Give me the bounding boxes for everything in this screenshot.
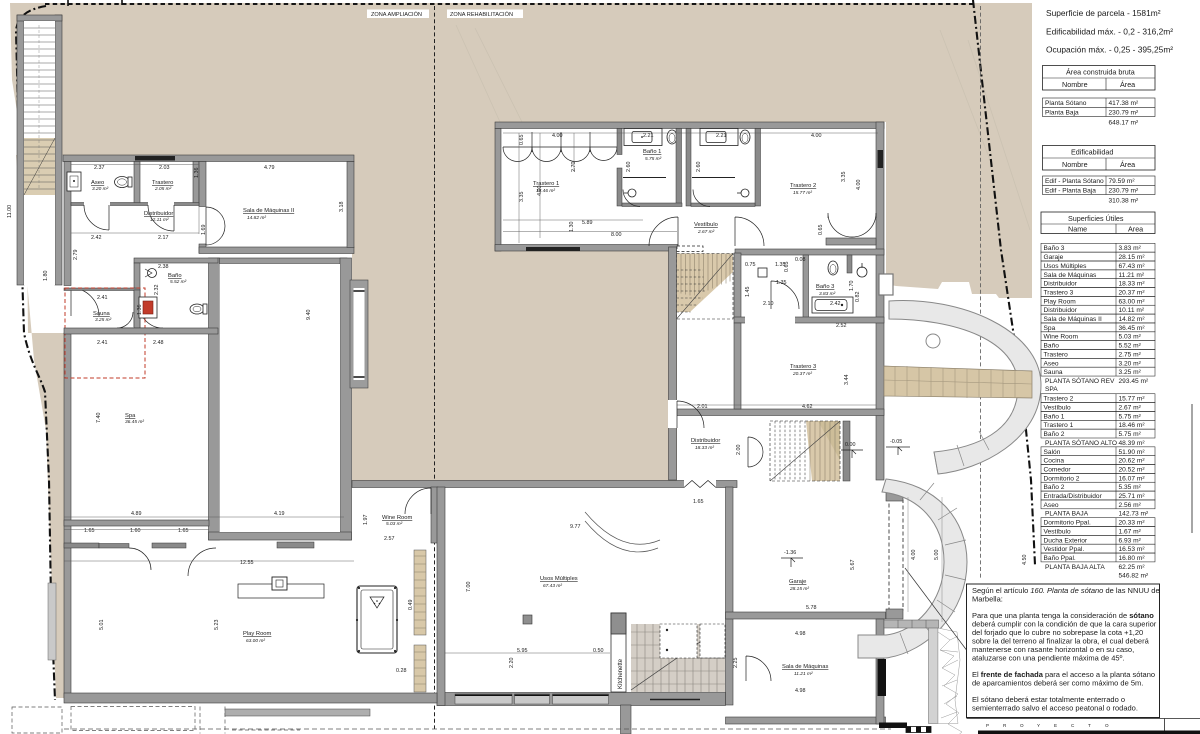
svg-text:142.73 m²: 142.73 m² (1119, 511, 1149, 518)
svg-text:2.32: 2.32 (154, 285, 160, 296)
svg-text:Dormitorio 2: Dormitorio 2 (1044, 475, 1080, 482)
svg-text:20.37 m²: 20.37 m² (792, 371, 812, 377)
svg-text:O: O (1105, 723, 1109, 728)
svg-text:1.65: 1.65 (178, 528, 189, 534)
svg-text:Baño 2: Baño 2 (1044, 484, 1065, 491)
svg-text:20.62 m²: 20.62 m² (1119, 458, 1146, 465)
svg-text:1.65: 1.65 (693, 499, 704, 505)
svg-text:Salón: Salón (1044, 449, 1061, 456)
svg-text:P: P (986, 723, 989, 728)
svg-text:417.38 m²: 417.38 m² (1109, 100, 1139, 107)
svg-text:1.97: 1.97 (363, 515, 369, 526)
svg-text:4.00: 4.00 (552, 133, 563, 139)
svg-text:62.25 m²: 62.25 m² (1119, 564, 1146, 571)
svg-text:Sauna: Sauna (1044, 369, 1063, 376)
svg-text:2.25: 2.25 (733, 658, 739, 669)
svg-text:5.89: 5.89 (582, 220, 593, 226)
svg-text:Ocupación máx. - 0,25 - 395,25: Ocupación máx. - 0,25 - 395,25m² (1046, 45, 1173, 55)
svg-text:3.25 m²: 3.25 m² (95, 317, 112, 323)
svg-text:Trastero 3: Trastero 3 (1044, 289, 1074, 296)
svg-text:PLANTA SÓTANO REV: PLANTA SÓTANO REV (1045, 376, 1115, 385)
svg-text:ataluzarse con una pendiente m: ataluzarse con una pendiente máxima de 4… (972, 654, 1124, 663)
svg-text:2.48: 2.48 (153, 340, 164, 346)
svg-text:20.37 m²: 20.37 m² (1119, 289, 1146, 296)
svg-text:3.18: 3.18 (339, 202, 345, 213)
svg-text:36.45 m²: 36.45 m² (1119, 325, 1146, 332)
svg-text:Garaje: Garaje (1044, 254, 1064, 261)
svg-text:Cocina: Cocina (1044, 458, 1065, 465)
svg-text:79.59 m²: 79.59 m² (1109, 178, 1136, 185)
svg-text:14.82 m²: 14.82 m² (247, 215, 266, 221)
svg-text:310.38 m²: 310.38 m² (1109, 198, 1139, 205)
svg-text:Nombre: Nombre (1062, 160, 1088, 169)
svg-text:28.15 m²: 28.15 m² (789, 586, 809, 592)
svg-text:2.60: 2.60 (626, 162, 632, 173)
svg-text:Trastero 1: Trastero 1 (1044, 422, 1074, 429)
svg-text:11.00: 11.00 (7, 205, 13, 218)
svg-text:Edif - Planta Sótano: Edif - Planta Sótano (1045, 178, 1104, 185)
svg-text:2.79: 2.79 (73, 250, 79, 261)
svg-text:2.75 m²: 2.75 m² (1119, 351, 1142, 358)
svg-text:2.05 m²: 2.05 m² (154, 186, 172, 192)
svg-text:63.00 m²: 63.00 m² (1119, 298, 1146, 305)
svg-text:63.00 m²: 63.00 m² (246, 638, 265, 644)
svg-text:4.50: 4.50 (1022, 555, 1028, 566)
svg-text:51.90 m²: 51.90 m² (1119, 449, 1146, 456)
svg-text:0.65: 0.65 (818, 225, 824, 236)
svg-text:2.20: 2.20 (509, 658, 515, 669)
svg-text:Wine Room: Wine Room (382, 515, 412, 521)
svg-text:2.17: 2.17 (158, 235, 169, 241)
svg-text:2.42: 2.42 (830, 301, 841, 307)
svg-text:Baño Ppal.: Baño Ppal. (1044, 555, 1076, 562)
svg-text:Edificabilidad máx. - 0,2 - 31: Edificabilidad máx. - 0,2 - 316,2m² (1046, 27, 1173, 37)
svg-text:T: T (1088, 723, 1091, 728)
svg-text:PLANTA BAJA: PLANTA BAJA (1045, 511, 1089, 518)
svg-text:2.41: 2.41 (97, 340, 108, 346)
svg-text:5.75 m²: 5.75 m² (645, 156, 662, 162)
svg-text:16.53 m²: 16.53 m² (1119, 546, 1146, 553)
svg-text:5.67: 5.67 (850, 560, 856, 571)
svg-text:5.00: 5.00 (934, 550, 940, 561)
svg-text:16.80 m²: 16.80 m² (1119, 555, 1146, 562)
svg-text:4.19: 4.19 (274, 511, 285, 517)
svg-text:2.67 m²: 2.67 m² (1119, 405, 1142, 412)
svg-text:3.35: 3.35 (841, 172, 847, 183)
svg-text:3.35: 3.35 (519, 192, 525, 203)
svg-text:0.75: 0.75 (745, 262, 756, 268)
svg-text:5.03 m²: 5.03 m² (1119, 334, 1142, 341)
svg-text:2.00: 2.00 (736, 445, 742, 456)
svg-text:ZONA REHABILITACIÓN: ZONA REHABILITACIÓN (450, 11, 513, 18)
svg-text:5.75 m²: 5.75 m² (1119, 431, 1142, 438)
svg-text:2.21: 2.21 (643, 133, 654, 139)
svg-text:Aseo: Aseo (1044, 360, 1059, 367)
svg-text:Sala de Máquinas II: Sala de Máquinas II (243, 208, 295, 214)
svg-text:de aparcamientos deberá ser co: de aparcamientos deberá ser como máximo … (972, 679, 1143, 688)
svg-text:1.67 m²: 1.67 m² (1119, 528, 1142, 535)
svg-text:0.08: 0.08 (795, 257, 806, 263)
svg-text:9.77: 9.77 (570, 524, 581, 530)
svg-text:20.52 m²: 20.52 m² (1119, 466, 1146, 473)
svg-text:Trastero: Trastero (1044, 351, 1069, 358)
svg-text:Spa: Spa (1044, 325, 1056, 332)
svg-text:3.25 m²: 3.25 m² (1119, 369, 1142, 376)
svg-text:Baño 3: Baño 3 (816, 284, 834, 290)
svg-text:Vestíbulo: Vestíbulo (1044, 528, 1071, 535)
svg-text:Área: Área (1120, 160, 1135, 169)
svg-text:1.70: 1.70 (849, 281, 855, 292)
svg-text:5.03 m²: 5.03 m² (386, 521, 403, 527)
svg-text:Garaje: Garaje (789, 579, 806, 585)
svg-text:1.60: 1.60 (130, 528, 141, 534)
svg-text:7.00: 7.00 (466, 582, 472, 593)
svg-text:Planta Baja: Planta Baja (1045, 109, 1079, 116)
svg-text:-1.36: -1.36 (784, 550, 796, 556)
svg-text:Ducha Exterior: Ducha Exterior (1044, 537, 1088, 544)
svg-text:Superficie de parcela - 1581m²: Superficie de parcela - 1581m² (1046, 8, 1161, 18)
svg-text:Trastero 3: Trastero 3 (790, 364, 816, 370)
svg-text:67.43 m²: 67.43 m² (543, 583, 562, 589)
svg-text:4.89: 4.89 (131, 511, 142, 517)
svg-text:4.00: 4.00 (811, 133, 822, 139)
svg-text:Wine Room: Wine Room (1044, 334, 1079, 341)
svg-text:2.57: 2.57 (384, 536, 395, 542)
svg-text:Area: Area (1128, 225, 1143, 234)
svg-text:Trastero 2: Trastero 2 (790, 183, 816, 189)
svg-text:5.23: 5.23 (214, 620, 220, 631)
svg-text:Marbella:: Marbella: (972, 595, 1003, 604)
svg-text:48.39 m²: 48.39 m² (1119, 440, 1146, 447)
svg-text:2.42: 2.42 (91, 235, 102, 241)
svg-text:28.15 m²: 28.15 m² (1119, 254, 1146, 261)
svg-text:5.52 m²: 5.52 m² (170, 279, 187, 285)
svg-text:Trastero 2: Trastero 2 (1044, 396, 1074, 403)
svg-text:1.30: 1.30 (569, 222, 575, 233)
svg-text:Superficies Útiles: Superficies Útiles (1068, 214, 1124, 223)
svg-text:4.98: 4.98 (795, 688, 806, 694)
svg-text:0.28: 0.28 (396, 668, 407, 674)
svg-text:18.33 m²: 18.33 m² (695, 445, 714, 451)
svg-text:Nombre: Nombre (1062, 80, 1088, 89)
svg-text:Distribuidor: Distribuidor (1044, 307, 1078, 314)
svg-text:9.40: 9.40 (306, 310, 312, 321)
svg-text:12.11 m²: 12.11 m² (150, 217, 169, 223)
svg-text:4.79: 4.79 (264, 165, 275, 171)
svg-text:Baño: Baño (1044, 343, 1060, 350)
svg-text:18.33 m²: 18.33 m² (1119, 281, 1146, 288)
svg-text:3.20 m²: 3.20 m² (1119, 360, 1142, 367)
svg-text:E: E (1054, 723, 1057, 728)
svg-text:Vestidor Ppal.: Vestidor Ppal. (1044, 546, 1085, 553)
svg-text:25.71 m²: 25.71 m² (1119, 493, 1146, 500)
svg-text:Sala de Máquinas: Sala de Máquinas (782, 664, 829, 670)
svg-text:3.83 m²: 3.83 m² (819, 291, 836, 297)
svg-text:Usos Múltiples: Usos Múltiples (540, 576, 578, 582)
svg-text:Play Room: Play Room (1044, 298, 1077, 305)
svg-text:Spa: Spa (125, 413, 136, 419)
svg-text:O: O (1020, 723, 1024, 728)
svg-text:Sauna: Sauna (93, 311, 111, 317)
svg-text:Aseo: Aseo (1044, 502, 1059, 509)
svg-text:5.01: 5.01 (99, 620, 105, 631)
svg-text:Aseo: Aseo (91, 180, 104, 186)
svg-text:Distribuidor: Distribuidor (1044, 281, 1078, 288)
svg-text:4.00: 4.00 (911, 550, 917, 561)
svg-text:2.56 m²: 2.56 m² (1119, 502, 1142, 509)
svg-text:10.11 m²: 10.11 m² (1119, 307, 1145, 314)
svg-text:Área: Área (1120, 80, 1135, 89)
svg-text:2.38: 2.38 (158, 264, 169, 270)
svg-text:Name: Name (1068, 225, 1087, 234)
svg-text:15.77 m²: 15.77 m² (1119, 396, 1146, 403)
svg-text:Baño 1: Baño 1 (1044, 413, 1065, 420)
svg-text:36.45 m²: 36.45 m² (125, 419, 144, 425)
svg-text:Sala de Máquinas: Sala de Máquinas (1044, 272, 1097, 279)
svg-text:Baño 1: Baño 1 (643, 149, 661, 155)
svg-text:3.20 m²: 3.20 m² (92, 186, 109, 192)
svg-text:2.37: 2.37 (94, 165, 105, 171)
svg-text:0.49: 0.49 (408, 600, 414, 611)
svg-text:PLANTA SÓTANO ALTO: PLANTA SÓTANO ALTO (1045, 438, 1117, 447)
svg-text:ZONA AMPLIACIÓN: ZONA AMPLIACIÓN (371, 11, 422, 18)
svg-text:11.21 m²: 11.21 m² (1119, 272, 1145, 279)
svg-text:14.82 m²: 14.82 m² (1119, 316, 1146, 323)
svg-text:18.46 m²: 18.46 m² (1119, 422, 1146, 429)
svg-text:Baño: Baño (168, 273, 182, 279)
svg-text:0.65: 0.65 (784, 262, 790, 273)
svg-text:230.79 m²: 230.79 m² (1109, 187, 1139, 194)
svg-text:Edif - Planta Baja: Edif - Planta Baja (1045, 187, 1096, 194)
svg-text:Trastero: Trastero (152, 180, 173, 186)
svg-text:1.69: 1.69 (201, 225, 207, 236)
svg-text:2.67 m²: 2.67 m² (697, 229, 715, 235)
svg-text:Kitchenette: Kitchenette (618, 658, 624, 689)
svg-text:Área construida bruta: Área construida bruta (1066, 68, 1135, 77)
svg-text:Dormitorio Ppal.: Dormitorio Ppal. (1044, 520, 1091, 527)
svg-text:1.45: 1.45 (745, 287, 751, 298)
svg-text:5.52 m²: 5.52 m² (1119, 343, 1142, 350)
svg-text:Entrada/Distribuidor: Entrada/Distribuidor (1044, 493, 1103, 500)
svg-text:230.79 m²: 230.79 m² (1109, 109, 1139, 116)
svg-text:3.44: 3.44 (844, 375, 850, 386)
svg-text:Vestíbulo: Vestíbulo (1044, 405, 1071, 412)
svg-text:5.35 m²: 5.35 m² (1119, 484, 1142, 491)
svg-text:2.41: 2.41 (97, 295, 108, 301)
svg-text:2.10: 2.10 (763, 301, 774, 307)
svg-text:Baño 2: Baño 2 (1044, 431, 1065, 438)
svg-text:546.82 m²: 546.82 m² (1119, 573, 1149, 580)
svg-text:16.07 m²: 16.07 m² (1119, 475, 1146, 482)
svg-text:Distribuidor: Distribuidor (691, 438, 720, 444)
svg-text:0.82: 0.82 (855, 292, 861, 303)
svg-text:Distribuidor: Distribuidor (144, 211, 173, 217)
svg-text:0.00: 0.00 (845, 442, 856, 448)
svg-text:20.33 m²: 20.33 m² (1119, 520, 1146, 527)
svg-text:-0.05: -0.05 (890, 439, 902, 445)
svg-text:5.75 m²: 5.75 m² (1119, 413, 1142, 420)
svg-text:3.83 m²: 3.83 m² (1119, 245, 1142, 252)
svg-text:15.77 m²: 15.77 m² (793, 190, 812, 196)
svg-text:6.93 m²: 6.93 m² (1119, 537, 1142, 544)
svg-text:11.21 m²: 11.21 m² (794, 671, 813, 677)
svg-text:SPA: SPA (1045, 386, 1058, 393)
svg-text:8.00: 8.00 (611, 232, 622, 238)
svg-text:2.60: 2.60 (696, 162, 702, 173)
svg-text:0.65: 0.65 (519, 135, 525, 146)
svg-text:7.40: 7.40 (96, 413, 102, 424)
svg-text:Planta Sótano: Planta Sótano (1045, 100, 1087, 107)
svg-text:2.03: 2.03 (159, 165, 170, 171)
svg-text:Baño 3: Baño 3 (1044, 245, 1065, 252)
svg-text:PLANTA BAJA ALTA: PLANTA BAJA ALTA (1045, 564, 1105, 571)
svg-text:4.00: 4.00 (856, 180, 862, 191)
svg-text:1.80: 1.80 (43, 271, 49, 282)
svg-text:Sala de Máquinas II: Sala de Máquinas II (1044, 316, 1102, 323)
svg-text:Edificabilidad: Edificabilidad (1071, 148, 1113, 157)
svg-text:67.43 m²: 67.43 m² (1119, 263, 1146, 270)
svg-text:Usos Múltiples: Usos Múltiples (1044, 263, 1088, 270)
svg-text:Y: Y (1037, 723, 1040, 728)
svg-text:2.52: 2.52 (836, 323, 847, 329)
svg-text:4.98: 4.98 (795, 631, 806, 637)
svg-text:648.17 m²: 648.17 m² (1109, 120, 1139, 127)
svg-text:293.45 m²: 293.45 m² (1119, 378, 1149, 385)
svg-text:Vestíbulo: Vestíbulo (694, 222, 718, 228)
svg-text:2.21: 2.21 (716, 133, 727, 139)
svg-text:1.35: 1.35 (776, 280, 787, 286)
svg-text:5.78: 5.78 (806, 605, 817, 611)
svg-text:1.65: 1.65 (84, 528, 95, 534)
svg-text:Comedor: Comedor (1044, 466, 1072, 473)
svg-text:Play Room: Play Room (243, 631, 272, 637)
svg-text:semienterrado salvo el acceso: semienterrado salvo el acceso peatonal o… (972, 704, 1138, 713)
svg-text:1.36: 1.36 (137, 305, 143, 316)
